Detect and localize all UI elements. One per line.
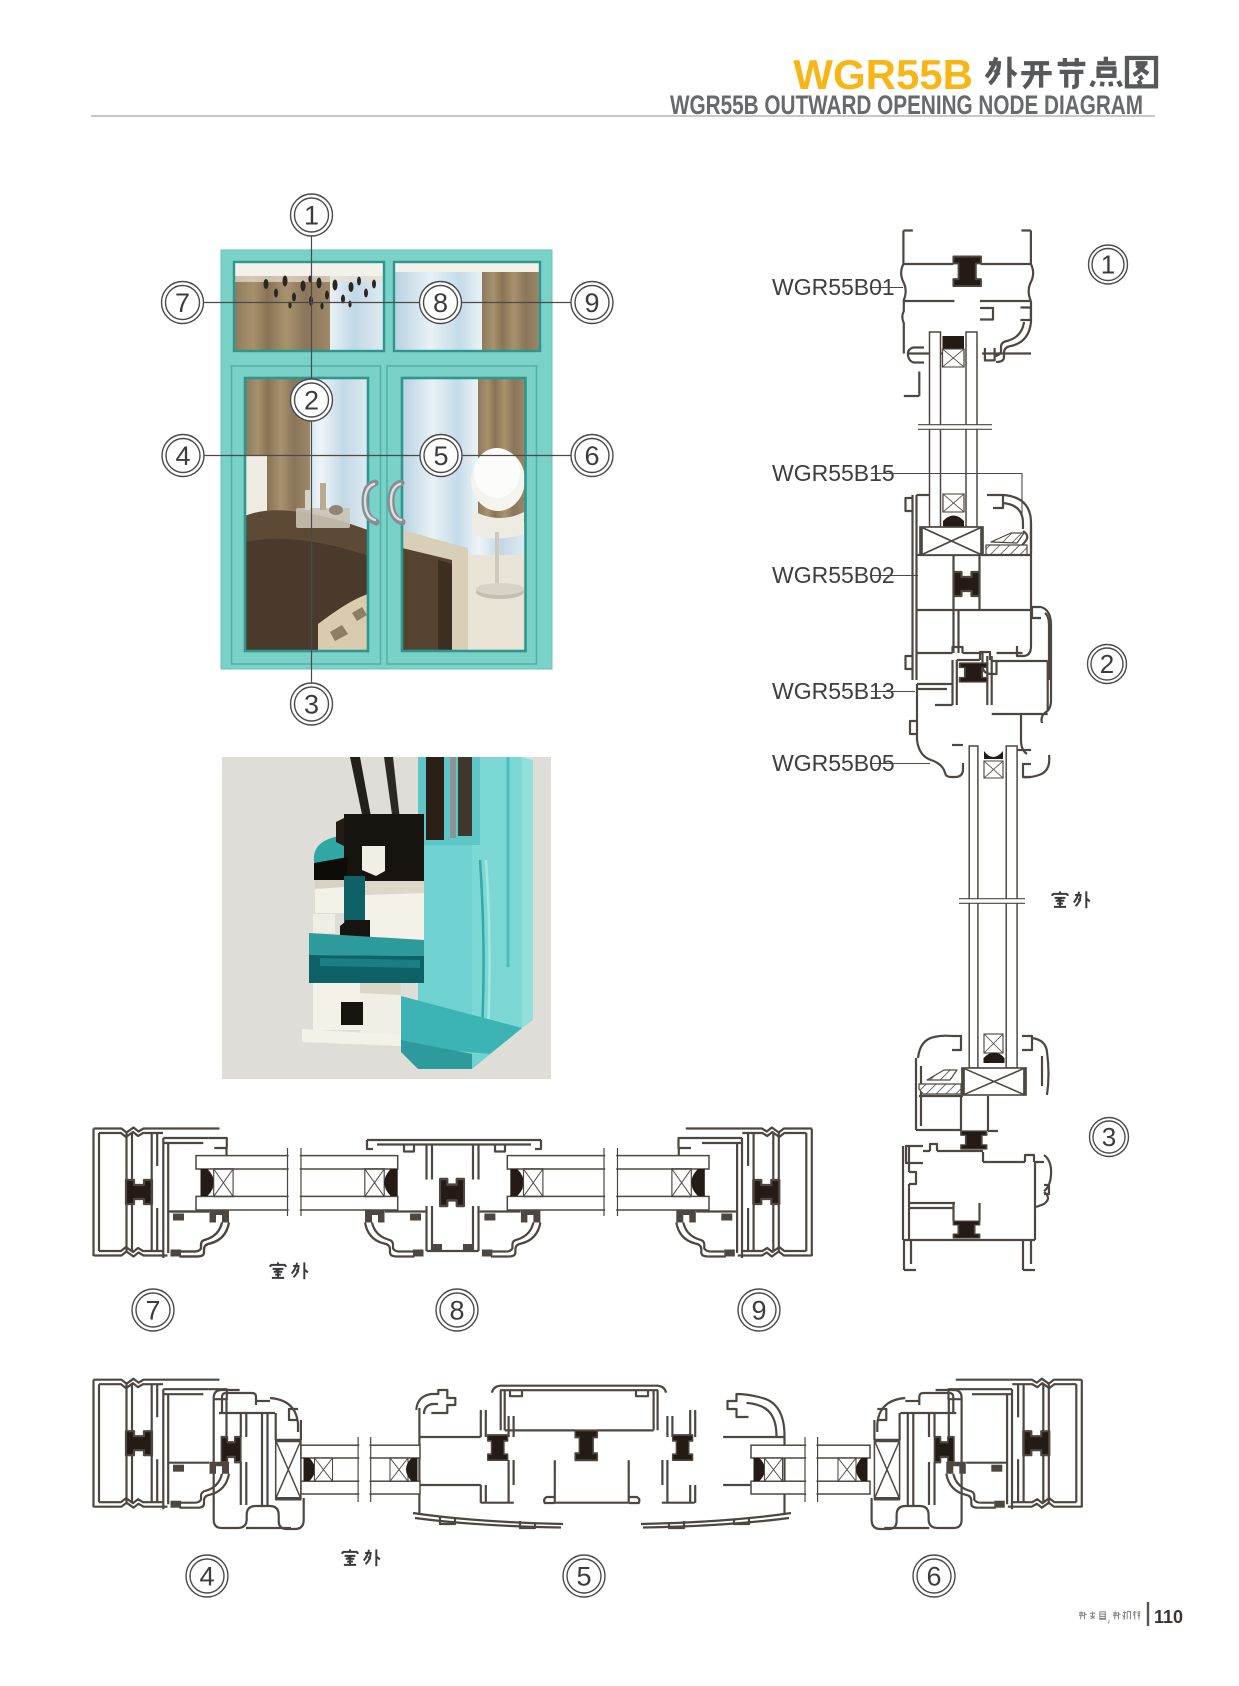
svg-text:7: 7 bbox=[175, 288, 190, 318]
svg-text:110: 110 bbox=[1154, 1607, 1183, 1627]
svg-text:9: 9 bbox=[751, 1296, 766, 1326]
svg-text:5: 5 bbox=[576, 1562, 591, 1592]
svg-text:9: 9 bbox=[584, 288, 599, 318]
svg-text:8: 8 bbox=[449, 1296, 464, 1326]
svg-text:8: 8 bbox=[433, 288, 448, 318]
svg-text:4: 4 bbox=[175, 441, 190, 471]
svg-text:2: 2 bbox=[304, 386, 319, 416]
svg-text:1: 1 bbox=[304, 201, 319, 231]
svg-text:3: 3 bbox=[1102, 1122, 1116, 1152]
svg-text:6: 6 bbox=[926, 1562, 941, 1592]
svg-text:3: 3 bbox=[304, 690, 319, 720]
svg-text:2: 2 bbox=[1100, 649, 1114, 679]
svg-text:5: 5 bbox=[433, 441, 448, 471]
svg-text:1: 1 bbox=[1101, 250, 1115, 280]
svg-text:6: 6 bbox=[584, 441, 599, 471]
svg-text:4: 4 bbox=[199, 1562, 214, 1592]
svg-text:7: 7 bbox=[145, 1296, 160, 1326]
